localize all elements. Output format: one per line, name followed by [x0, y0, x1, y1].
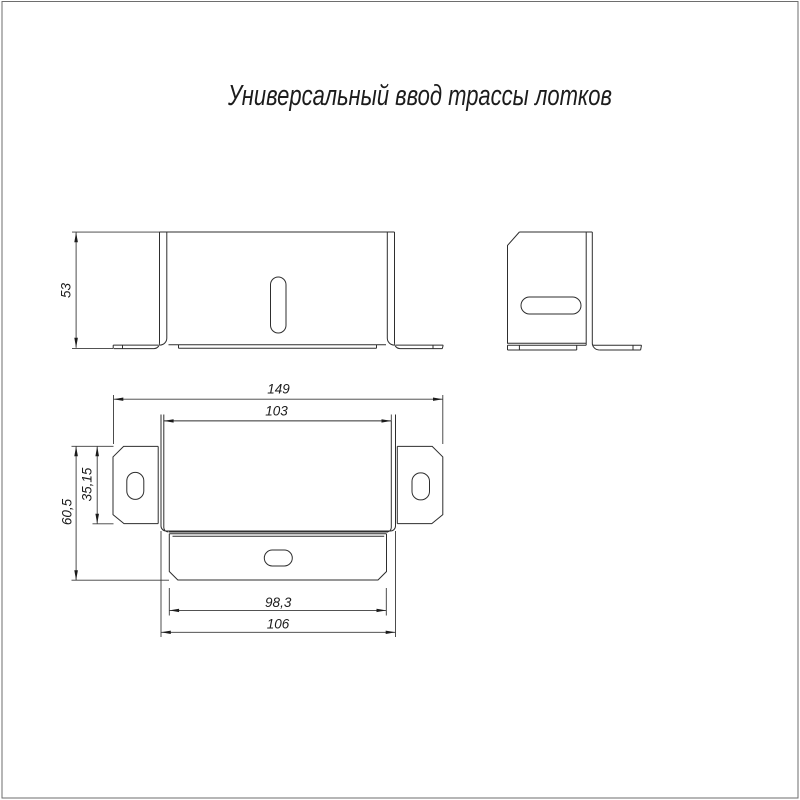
svg-text:53: 53	[59, 283, 74, 299]
svg-text:35,15: 35,15	[80, 467, 95, 501]
svg-text:Универсальный ввод трассы лотк: Универсальный ввод трассы лотков	[227, 80, 612, 112]
svg-text:103: 103	[265, 404, 288, 419]
svg-text:149: 149	[267, 381, 290, 396]
svg-text:106: 106	[267, 617, 290, 632]
svg-text:60,5: 60,5	[59, 498, 74, 525]
svg-text:98,3: 98,3	[265, 595, 292, 610]
